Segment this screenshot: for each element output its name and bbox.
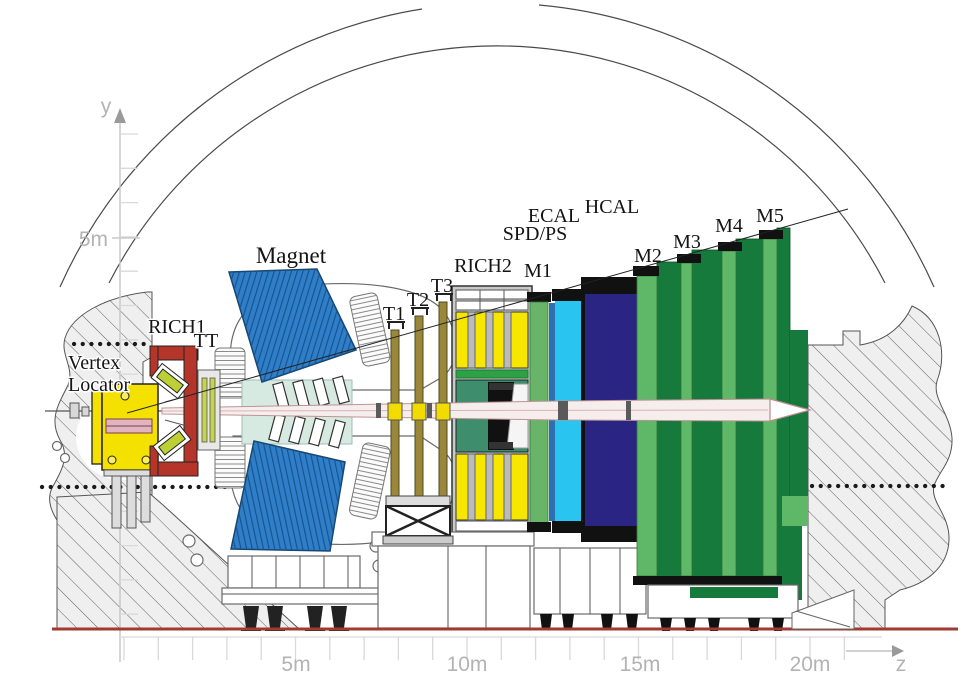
muon-support [648,585,798,631]
tt-layer [210,378,215,442]
y-axis-5m-label: 5m [79,228,108,251]
rich2-pillars-lower [468,454,511,520]
z-axis-label: z [896,653,907,676]
calorimeters [527,277,646,630]
z-5m-label: 5m [281,653,310,676]
rich2-pillars-upper [468,312,511,368]
velo-legs [104,470,158,528]
tt-frame [198,370,220,450]
m1-bottom-cap [527,522,551,532]
t2-flange [412,403,426,420]
muon-system [633,228,808,631]
lhcb-detector-diagram: y 5m 5m 10m 15m 20m z [0,0,960,676]
z-20m-label: 20m [790,653,831,676]
hcal-top-cap [581,277,641,294]
magnet-label: Magnet [256,243,327,268]
y-axis-label: y [101,95,112,118]
cavern-arcs [60,5,934,287]
cavern-outer-arc-left [60,9,422,287]
m1-top-cap [527,292,551,302]
velo-port-circle [108,456,116,464]
rich2-green-strip [456,370,528,378]
ecal-label: ECAL [528,205,580,227]
ecal-bottom-cap [552,521,585,533]
m4-label: M4 [715,215,743,237]
rich2-sensor-strip [489,442,513,449]
velo-port-circle [142,456,150,464]
tt-station [198,370,220,450]
diagram-canvas: y 5m 5m 10m 15m 20m z [0,0,960,676]
t-station-support [383,496,453,544]
tt-label: TT [194,330,218,352]
muon-bottom-frame [633,576,790,585]
t2-label: T2 [407,289,429,311]
hcal-bottom-cap [581,526,641,542]
rich2-top-slat [456,290,528,299]
t1-flange [388,403,402,420]
t3-tracker [439,302,447,496]
hcal-label: HCAL [585,196,639,218]
right-wall [808,306,952,630]
tt-layer [202,378,207,442]
z-axis: 5m 10m 15m 20m z [120,637,906,676]
t3-flange [436,403,450,420]
m1-label: M1 [524,260,552,282]
calorimeter-support [534,548,646,630]
z-10m-label: 10m [447,653,488,676]
t1-label: T1 [383,303,405,325]
m2-label: M2 [634,245,662,267]
t3-label: T3 [431,275,453,297]
tracking-stations [383,294,453,544]
muon-support-beam [690,587,778,598]
wall-bolt-circle [183,535,195,547]
m3-label: M3 [673,231,701,253]
z-15m-label: 15m [620,653,661,676]
rich2-pedestal [378,546,530,628]
rich2-sensor-strip [489,383,513,390]
rich2-label: RICH2 [454,255,512,277]
y-axis-arrow-icon [114,108,126,123]
m5-label: M5 [756,205,784,227]
rich2-bottom-slat [456,521,528,531]
vertex-locator-label-1: Vertex [68,352,120,374]
vertex-locator-label-2: Locator [68,374,131,396]
muon-shield-light [782,496,808,526]
velo-end-cap [92,390,102,464]
ecal-top-cap [552,289,585,301]
wall-bolt-circle [191,554,203,566]
